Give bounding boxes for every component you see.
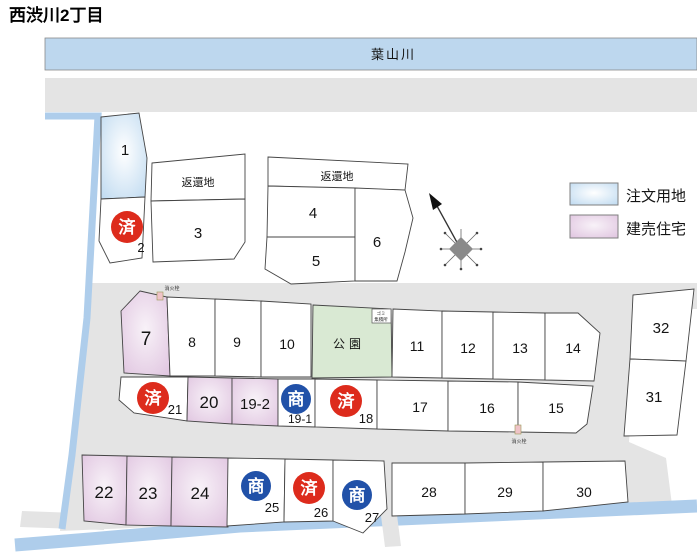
returned-land-1-label: 返還地 xyxy=(182,176,215,189)
legend: 注文用地 建売住宅 xyxy=(570,183,686,238)
lot-5-number: 5 xyxy=(312,253,320,270)
lot-1[interactable]: 1 xyxy=(101,113,147,199)
lot-23[interactable]: 23 xyxy=(126,456,172,526)
lot-2[interactable]: 済 2 xyxy=(99,197,145,263)
garbage-station: ゴミ 集積所 xyxy=(372,309,391,323)
lot-17[interactable]: 17 xyxy=(377,380,448,431)
lot-8-number: 8 xyxy=(188,334,196,350)
legend-label-order-land: 注文用地 xyxy=(626,188,686,205)
returned-land-1: 返還地 xyxy=(151,154,245,201)
subdivision-map: 西渋川2丁目 葉山川 1 済 2 返還地 3 返還地 4 xyxy=(0,0,697,554)
dealing-badge-label: 商 xyxy=(288,389,305,409)
lot-15-number: 15 xyxy=(548,400,564,416)
road-top xyxy=(45,78,697,112)
lot-15[interactable]: 15 xyxy=(518,382,593,433)
lot-25-number: 25 xyxy=(265,500,279,515)
lot-24[interactable]: 24 xyxy=(171,457,228,527)
lot-13[interactable]: 13 xyxy=(493,312,545,380)
lot-29-number: 29 xyxy=(497,484,513,500)
lot-22-number: 22 xyxy=(95,483,114,502)
lot-17-number: 17 xyxy=(412,399,428,415)
lot-4[interactable]: 4 xyxy=(267,186,355,237)
returned-land-2: 返還地 xyxy=(268,157,408,190)
lot-28-number: 28 xyxy=(421,484,437,500)
fire-hydrant-2-marker xyxy=(515,425,521,434)
lot-3-number: 3 xyxy=(194,225,202,242)
lot-22[interactable]: 22 xyxy=(82,455,127,525)
page-title: 西渋川2丁目 xyxy=(9,5,103,25)
lot-19-1[interactable]: 商 19-1 xyxy=(278,379,315,427)
lot-7[interactable]: 7 xyxy=(121,291,170,376)
park-label: 公園 xyxy=(333,337,365,351)
lot-7-number: 7 xyxy=(141,329,152,350)
lot-10-number: 10 xyxy=(279,336,295,352)
lot-9-number: 9 xyxy=(233,334,241,350)
lot-2-number: 2 xyxy=(137,240,144,255)
lot-27[interactable]: 商 27 xyxy=(333,460,387,533)
lot-10[interactable]: 10 xyxy=(261,301,311,377)
lot-21-number: 21 xyxy=(168,402,182,417)
sold-badge-label: 済 xyxy=(145,388,163,408)
lot-29[interactable]: 29 xyxy=(465,462,543,514)
compass-north-arrow xyxy=(429,193,482,270)
lot-19-2[interactable]: 19-2 xyxy=(232,378,278,426)
lot-20[interactable]: 20 xyxy=(187,377,232,424)
lot-16[interactable]: 16 xyxy=(448,381,518,432)
dealing-badge-label: 商 xyxy=(248,476,265,496)
fire-hydrant-1-marker xyxy=(157,292,163,300)
garbage-label-1: ゴミ xyxy=(377,310,386,316)
lot-1-number: 1 xyxy=(121,142,129,159)
fire-hydrant-2-label: 消火栓 xyxy=(511,438,526,445)
lot-31[interactable]: 31 xyxy=(624,359,686,436)
river: 葉山川 xyxy=(45,38,697,70)
lot-30-number: 30 xyxy=(576,484,592,500)
lot-24-number: 24 xyxy=(191,484,210,503)
lot-26-number: 26 xyxy=(314,505,328,520)
legend-swatch-order-land xyxy=(570,183,618,205)
lot-28[interactable]: 28 xyxy=(392,463,465,516)
lot-16-number: 16 xyxy=(479,400,495,416)
lot-14-number: 14 xyxy=(565,340,581,356)
lot-19-1-number: 19-1 xyxy=(288,412,312,426)
lot-5-shape xyxy=(265,237,355,284)
sold-badge-label: 済 xyxy=(301,478,319,498)
lot-23-number: 23 xyxy=(139,484,158,503)
lot-26[interactable]: 済 26 xyxy=(284,459,333,522)
lot-9[interactable]: 9 xyxy=(215,299,261,377)
lot-20-number: 20 xyxy=(200,393,219,412)
lot-18-number: 18 xyxy=(359,411,373,426)
returned-land-2-label: 返還地 xyxy=(321,170,354,183)
lot-6[interactable]: 6 xyxy=(355,188,413,281)
river-label: 葉山川 xyxy=(371,47,416,62)
legend-swatch-built-house xyxy=(570,215,618,238)
sold-badge-label: 済 xyxy=(338,391,356,411)
lot-12-number: 12 xyxy=(460,340,476,356)
dealing-badge-label: 商 xyxy=(349,485,366,505)
lot-3[interactable]: 3 xyxy=(151,199,245,262)
lot-4-number: 4 xyxy=(309,205,317,222)
lot-11[interactable]: 11 xyxy=(392,309,442,378)
lot-18[interactable]: 済 18 xyxy=(315,379,377,429)
lot-31-number: 31 xyxy=(646,389,663,406)
fire-hydrant-1-label: 消火栓 xyxy=(164,285,179,292)
lot-13-number: 13 xyxy=(512,340,528,356)
lot-6-number: 6 xyxy=(373,234,381,251)
park: 公園 ゴミ 集積所 xyxy=(312,305,392,378)
lot-8[interactable]: 8 xyxy=(167,297,215,376)
lot-32-number: 32 xyxy=(653,320,670,337)
lot-27-number: 27 xyxy=(365,510,379,525)
lot-32[interactable]: 32 xyxy=(630,289,694,361)
lot-30[interactable]: 30 xyxy=(543,461,628,511)
sold-badge-label: 済 xyxy=(119,217,137,237)
legend-label-built-house: 建売住宅 xyxy=(626,221,686,238)
lot-12[interactable]: 12 xyxy=(442,311,493,379)
lot-19-2-number: 19-2 xyxy=(240,396,270,413)
lot-5[interactable]: 5 xyxy=(265,237,355,284)
lot-25[interactable]: 商 25 xyxy=(227,458,285,526)
lot-11-number: 11 xyxy=(410,338,425,354)
lot-6-shape xyxy=(355,188,413,281)
garbage-label-2: 集積所 xyxy=(374,316,388,323)
